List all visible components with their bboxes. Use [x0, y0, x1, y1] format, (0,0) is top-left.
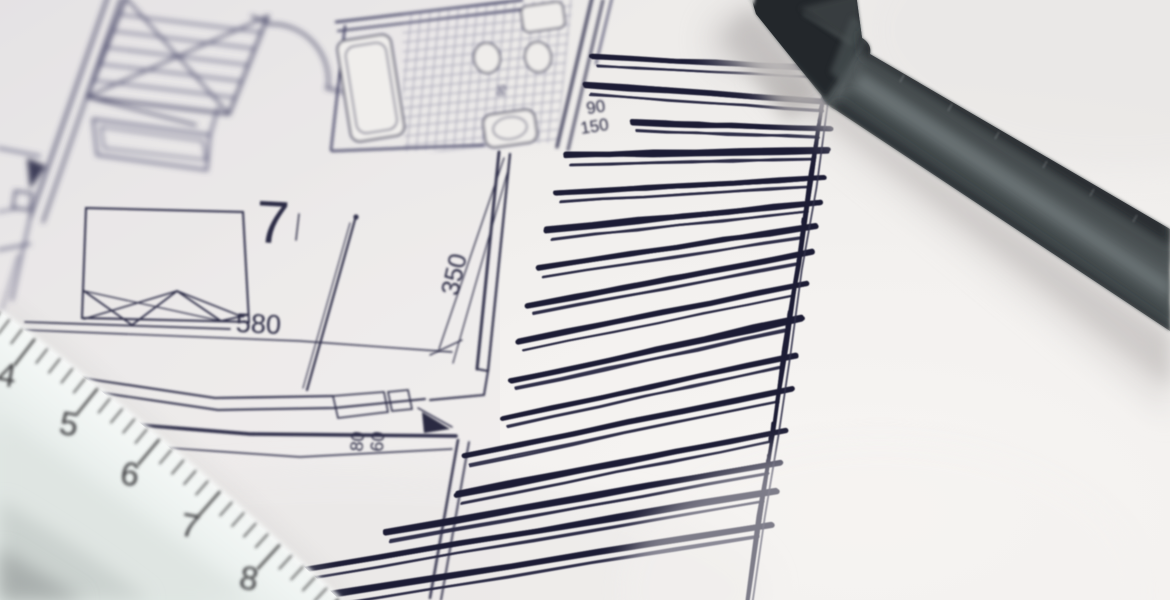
- svg-text:80: 80: [346, 431, 368, 453]
- svg-text:60: 60: [367, 431, 389, 453]
- svg-text:580: 580: [235, 308, 282, 340]
- svg-text:7: 7: [254, 188, 291, 257]
- svg-text:95: 95: [495, 83, 509, 97]
